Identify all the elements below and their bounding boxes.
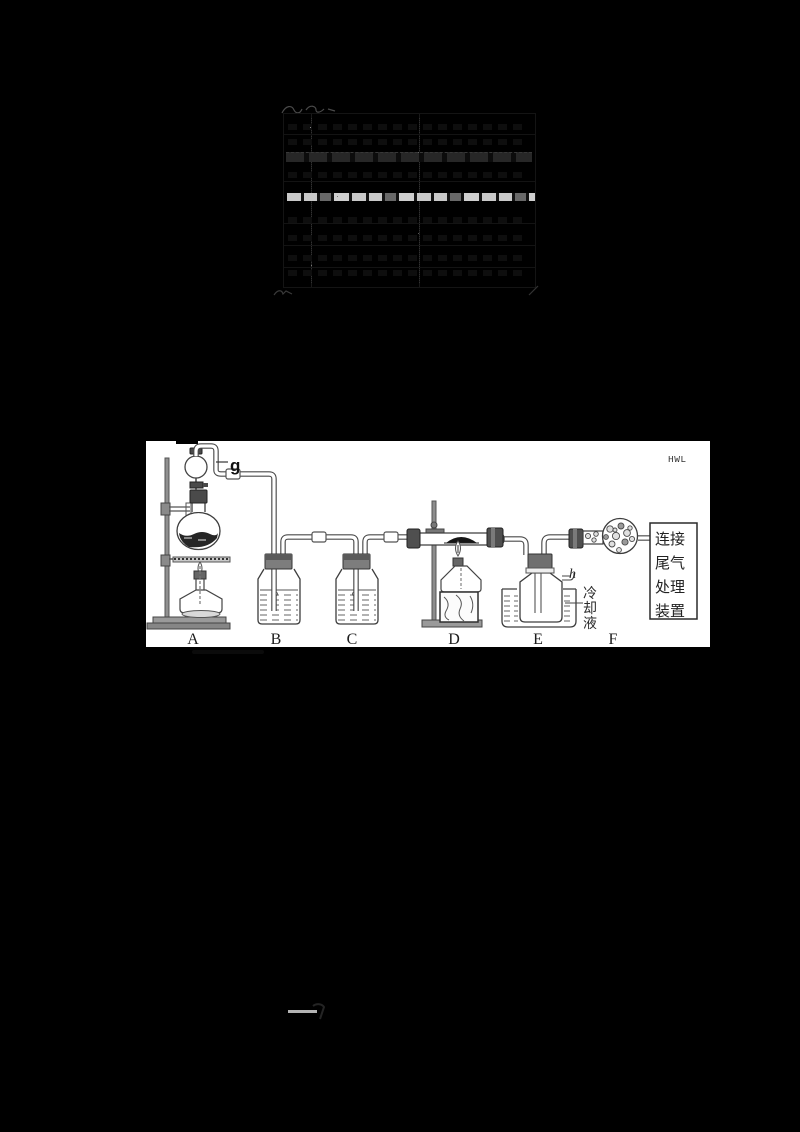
wire-gauze bbox=[169, 557, 230, 562]
table-hline bbox=[284, 181, 535, 182]
table-highlight-row bbox=[287, 193, 535, 201]
tailgas-box: 连接 尾气 处理 装置 bbox=[650, 523, 697, 620]
obscured-text-row bbox=[288, 217, 528, 223]
round-bottom-flask bbox=[177, 490, 220, 550]
alcohol-lamp-a bbox=[180, 562, 222, 618]
watermark-text: HWL bbox=[668, 454, 687, 465]
tube-connector bbox=[384, 532, 398, 542]
label-c: C bbox=[347, 631, 358, 647]
obscured-text-row bbox=[288, 172, 528, 178]
under-figure-smudge bbox=[192, 650, 264, 654]
obscured-table bbox=[283, 113, 536, 288]
tailgas-text-line: 连接 bbox=[655, 531, 685, 548]
apparatus-figure: 连接 尾气 处理 装置 冷 却 液 g h A B C D E bbox=[146, 441, 710, 647]
label-e: E bbox=[533, 631, 543, 647]
label-d: D bbox=[448, 631, 460, 647]
apparatus-drawing: 连接 尾气 处理 装置 冷 却 液 g h A B C D E bbox=[146, 441, 710, 647]
coolant-char: 却 bbox=[583, 601, 597, 617]
corner-mark-left bbox=[272, 286, 296, 299]
label-b: B bbox=[271, 631, 282, 647]
port-label-h: h bbox=[569, 567, 576, 582]
document-page: 连接 尾气 处理 装置 冷 却 液 g h A B C D E bbox=[0, 0, 800, 1132]
coolant-char: 冷 bbox=[583, 586, 597, 602]
pixel-specks bbox=[310, 127, 311, 128]
corner-mark-right bbox=[527, 284, 541, 297]
table-hline bbox=[284, 267, 535, 268]
table-hline bbox=[284, 223, 535, 224]
gas-washing-bottle-b bbox=[258, 569, 300, 624]
tailgas-text-line: 装置 bbox=[655, 603, 685, 620]
table-dark-row bbox=[286, 152, 532, 162]
table-hline bbox=[284, 134, 535, 135]
obscured-text-row bbox=[288, 124, 528, 130]
rubber-stopper bbox=[407, 529, 420, 548]
tailgas-text-line: 处理 bbox=[655, 579, 685, 596]
tailgas-text-line: 尾气 bbox=[655, 555, 685, 572]
label-f: F bbox=[609, 631, 618, 647]
bottle-caps bbox=[265, 554, 554, 573]
alcohol-lamp-d bbox=[441, 541, 481, 592]
obscured-text-row bbox=[288, 235, 528, 241]
obscured-text-row bbox=[288, 139, 528, 145]
obscured-text-row bbox=[288, 255, 528, 261]
bulb-tube-f bbox=[569, 519, 638, 554]
apparatus-letters: A B C D E F bbox=[187, 631, 617, 647]
wooden-block bbox=[440, 592, 478, 622]
obscured-text-row bbox=[288, 270, 528, 276]
bottom-hook-mark bbox=[312, 1002, 328, 1022]
port-label-g: g bbox=[230, 456, 240, 475]
table-hline bbox=[284, 245, 535, 246]
tube-connector bbox=[312, 532, 326, 542]
coolant-char: 液 bbox=[583, 616, 597, 632]
scan-artifact bbox=[176, 441, 198, 444]
label-a: A bbox=[187, 631, 199, 647]
